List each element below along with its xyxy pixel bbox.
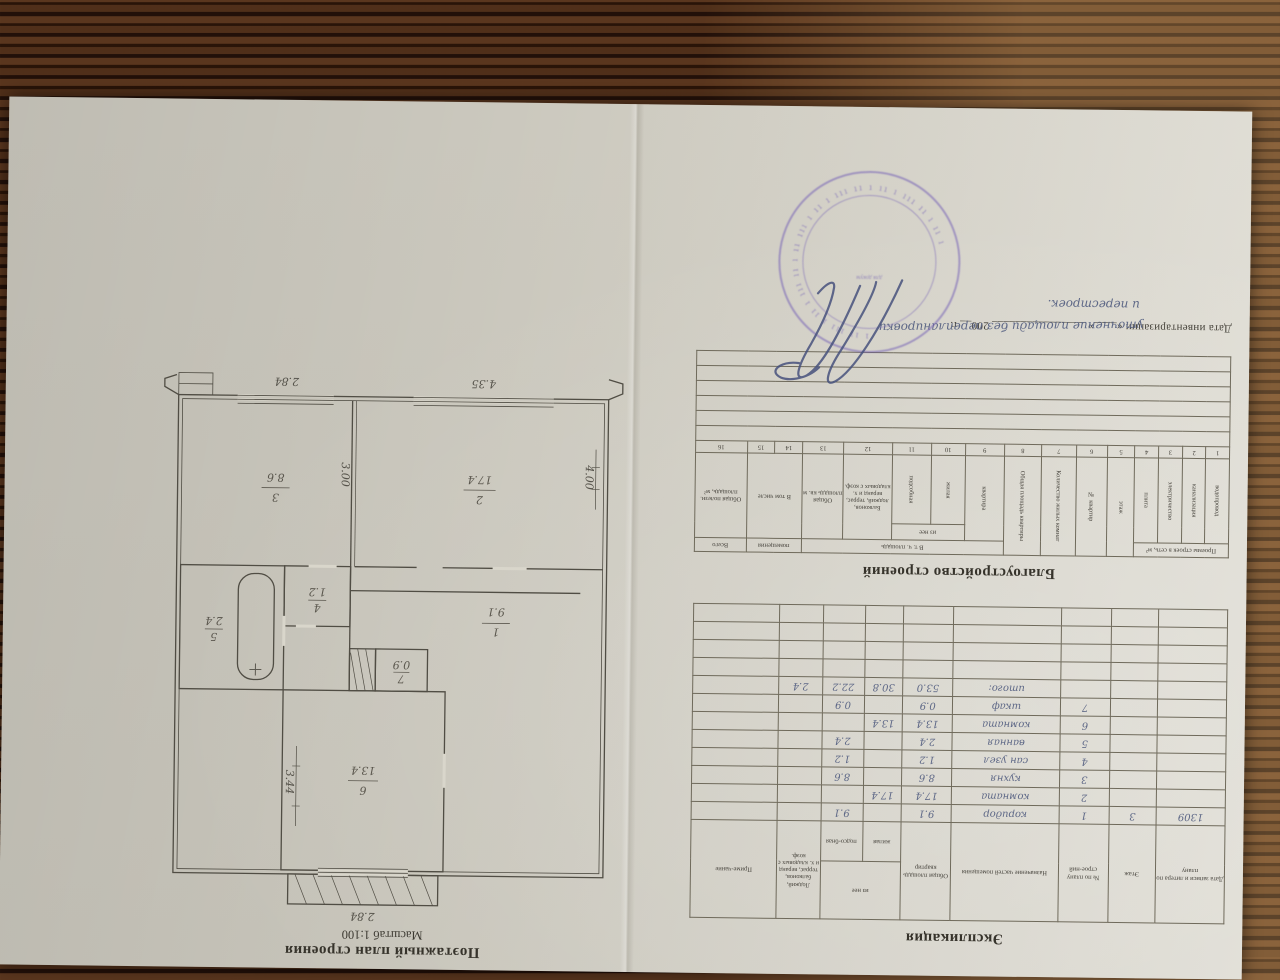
cell-living: 13.4 [864,713,903,731]
cell-note [692,729,779,748]
room-label: 2 17.4 [463,473,495,506]
cell-aux: 9.1 [821,803,863,822]
cell-aux: 22.2 [822,677,864,696]
colnum: 1 [1206,447,1230,459]
cell-name: итого: [953,679,1061,698]
room2-top-wall [355,567,603,570]
cell-aux: 0.9 [822,695,864,714]
expl-col-note: Приме-чание [690,819,778,918]
colnum: 10 [931,443,965,455]
cell-floor [1110,698,1158,717]
cell-num: 3 [1059,770,1109,789]
cell-aux [821,785,863,804]
closet-area: 0.9 [393,658,411,671]
loggia [288,874,438,906]
cell-floor [1110,716,1158,735]
cell-date [1157,753,1226,772]
cell-date [1156,771,1225,790]
expl-col-living: жилая [862,821,901,861]
blag-col-roomcount: Количество жилых комнат [1054,464,1062,548]
colnum: 8 [1004,444,1041,456]
cell-name: сан узел [952,751,1060,770]
cell-name: комната [952,715,1060,734]
cell-balc [777,802,820,821]
cell-floor [1110,680,1158,699]
colnum: 7 [1041,445,1076,457]
cell-balc [779,712,822,731]
room2-num: 2 [476,493,484,506]
cell-note [693,675,780,694]
room-label: 1 9.1 [482,605,510,638]
corridor-num: 1 [492,625,499,638]
floor-plan: 6 13.4 7 0.9 5 2.4 4 1.2 [122,324,649,930]
cell-num [1060,680,1110,699]
cell-num: 7 [1060,698,1110,717]
bathtub-tap [249,663,261,675]
expl-col-balconies: Лоджий, балконов, террас, веранд и х. кл… [776,820,820,919]
porch-brackets [165,374,623,400]
cell-living: 30.8 [864,677,903,695]
loggia-hatch [295,874,433,906]
bathroom-walls [179,565,285,690]
cell-num: 2 [1059,788,1109,807]
cell-aux: 8.6 [821,767,863,786]
bathtub [237,573,274,679]
cell-note [692,747,779,766]
cell-floor: 3 [1109,806,1157,825]
colnum: 15 [747,441,775,453]
colnum: 13 [803,442,844,455]
cell-aux: 1.2 [821,749,863,768]
cell-num: 4 [1060,752,1110,771]
signature [769,269,920,391]
cell-balc [778,748,821,767]
blag-group-net: Проемы строек в сеть, м² [1134,543,1229,558]
handwritten-note-line2: и перестроек. [1048,297,1140,312]
blag-group-iznee: из нее [891,524,964,541]
room-label: 3 8.6 [261,471,289,504]
cell-name: кухня [952,769,1060,788]
cell-date [1157,699,1226,718]
cell-date [1156,789,1225,808]
blag-col-sewer: канализация [1189,459,1197,543]
kitchen-num: 3 [272,491,279,504]
cell-name: шкаф [952,697,1060,716]
spacer [350,567,580,594]
dimensions: 3.44 2.84 4.35 4.00 2.84 3.00 [268,375,597,926]
corridor-wall-right [349,567,351,691]
cell-note [692,765,779,784]
expl-group-iznee: из нее [819,861,901,920]
colnum: 4 [1135,446,1159,458]
corridor-area: 9.1 [487,605,505,618]
room6-num: 6 [359,784,366,797]
wc-area: 1.2 [308,585,326,598]
cell-total: 53.0 [903,678,953,697]
cell-note [691,801,778,820]
cell-total: 0.9 [903,696,953,715]
cell-total: 1.2 [902,750,952,769]
expl-col-total: Общая площадь квартир [900,822,951,921]
cell-floor [1109,770,1157,789]
cell-living [863,803,902,821]
outer-wall-inner [177,399,605,874]
cell-living: 17.4 [863,785,902,803]
cell-num: 6 [1060,716,1110,735]
dim-room6-w: 2.84 [350,910,376,923]
room-label: 6 13.4 [348,764,378,797]
colnum: 12 [844,442,892,455]
expl-col-floor: Этаж [1107,824,1156,923]
blag-col-balconies: Балконов, лоджий, террас, веранд и х. кл… [843,454,892,540]
blag-group-vtom: В том числе [746,453,803,539]
blag-col-totalarea: Общая площадь квартиры [1018,464,1026,548]
cell-aux: 2.4 [821,731,863,750]
expl-col-aux: подсо-бная [820,821,863,862]
blag-col-flatnum: № квартир [1087,465,1095,549]
dim-room6-h: 3.44 [283,770,296,795]
entry-porch [179,373,213,395]
bath-area: 2.4 [205,614,224,627]
blag-title: Благоустройство строений [689,560,1229,584]
room6-area: 13.4 [351,764,376,777]
blag-group-pom: помещения [746,538,802,553]
cell-floor [1109,734,1157,753]
colnum: 3 [1159,446,1183,458]
kitchen-left-wall2 [355,401,357,567]
colnum: 16 [696,440,748,453]
blag-col-flat: квартира [980,456,988,540]
cell-total: 2.4 [902,732,952,751]
blag-col-floor: этаж [1116,465,1124,549]
cell-name: ванная [952,733,1060,752]
colnum: 6 [1076,445,1107,457]
cell-balc [778,730,821,749]
colnum: 11 [892,443,931,455]
blag-col16-sub: Общая полезн. площадь, м² [695,452,748,538]
blag-col16-top: Всего [694,537,746,552]
cell-date: 1309 [1156,807,1225,826]
bath-num: 5 [210,630,217,643]
room-labels: 6 13.4 7 0.9 5 2.4 4 1.2 [203,470,512,799]
blag-col-totalkvm: Общая площадь кв. м [802,454,844,539]
cell-floor [1109,788,1157,807]
cell-living [864,695,903,713]
colnum: 14 [775,441,803,453]
cell-name: коридор [951,805,1059,824]
blag-group-vtch: В т. ч. площадь [801,539,1003,555]
dim-kitchen-h: 3.00 [339,462,352,487]
blag-col-electric: электричество [1166,459,1174,543]
blag-col-aux: подсобная [907,462,915,518]
cell-date [1158,681,1227,700]
cell-total: 17.4 [902,786,952,805]
colnum: 2 [1182,446,1206,458]
blag-col-stove: плита [1142,458,1150,542]
blag-col-living: жилая [944,462,952,518]
cell-num: 1 [1059,806,1109,825]
cell-living [864,731,903,749]
room-label: 4 1.2 [308,585,326,614]
cell-total: 13.4 [903,714,953,733]
cell-note [691,783,778,802]
cell-balc: 2.4 [779,676,822,695]
cell-living [863,767,902,785]
cell-date [1157,735,1226,754]
corridor-wall [350,591,580,594]
cell-balc [778,766,821,785]
cell-balc [779,694,822,713]
wc-num: 4 [314,601,322,614]
cell-balc [778,784,821,803]
closet-num: 7 [398,672,405,685]
document-sheet: Экспликация Дата записи и литера по план… [0,96,1252,979]
expl-col-purpose: Назначение частей помещения [950,822,1059,921]
expl-col-date: Дата записи и литера по плану [1155,825,1225,924]
cell-living [863,749,902,767]
explication-table: Дата записи и литера по плану Этаж № по … [689,603,1228,925]
cell-note [692,711,779,730]
cell-date [1157,717,1226,736]
vent-hatch [350,649,374,691]
dim-room2-h: 4.00 [583,464,596,490]
cell-num: 5 [1060,734,1110,753]
expl-col-num: № по плану строе-ний [1058,824,1109,923]
cell-total: 8.6 [902,768,952,787]
blag-col-water: водопровод [1213,459,1221,543]
kitchen-area: 8.6 [267,471,285,484]
colnum: 9 [965,444,1004,456]
room2-area: 17.4 [467,473,492,486]
cell-aux [822,713,864,732]
room-label: 5 2.4 [205,614,224,643]
dim-kitchen-w: 2.84 [275,375,301,388]
colnum: 5 [1107,445,1135,457]
room-label: 7 0.9 [392,658,410,685]
dim-room2-w: 4.35 [472,377,498,390]
cell-total: 9.1 [901,804,951,823]
cell-floor [1109,752,1157,771]
cell-note [692,693,779,712]
cell-name: комната [951,787,1059,806]
